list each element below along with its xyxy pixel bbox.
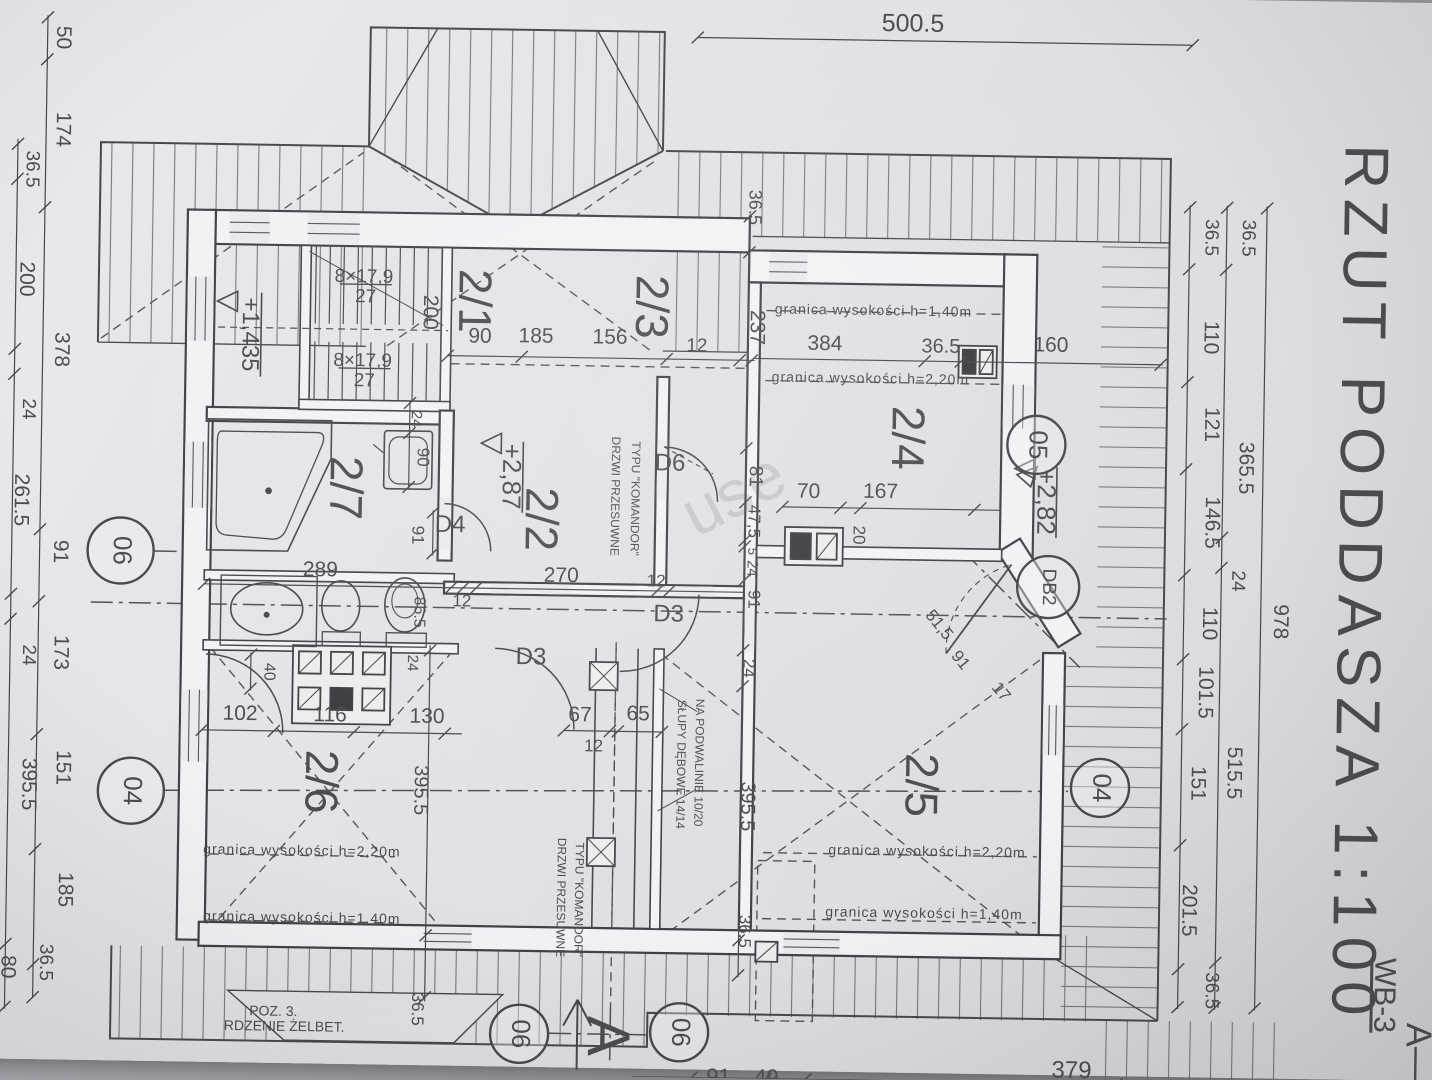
dim-label: 36.5	[408, 993, 428, 1026]
stair-note: 27	[354, 370, 375, 391]
dim-label: 12	[647, 571, 666, 590]
dim-label: 80	[0, 955, 20, 979]
room-label: 2/7	[320, 456, 373, 521]
dim-label: 237	[745, 310, 769, 345]
dim-label: 24	[408, 411, 425, 428]
room-label: 2/3	[626, 274, 679, 339]
dim-label: 91	[706, 1064, 731, 1080]
dim-label: 65	[626, 702, 650, 725]
door-note: DRZWI PRZESUWNE	[607, 436, 623, 556]
dim-label: 101.5	[1194, 666, 1218, 719]
height-limit: granica wysokości h=1,40m	[775, 300, 973, 319]
dim-chain-line	[698, 37, 1193, 45]
dim-chain-line	[433, 510, 434, 555]
dim-label: 365.5	[1234, 442, 1258, 495]
door-label: D6	[655, 449, 686, 476]
dim-label: 174	[51, 112, 75, 148]
dim-label: 36.5	[921, 335, 960, 358]
dim-label: 24	[18, 644, 39, 666]
dim-chain-line	[564, 730, 662, 732]
dim-label: 121	[1200, 407, 1224, 442]
dim-label: 91	[744, 590, 763, 609]
dim-label: 185	[518, 324, 553, 348]
door-note: TYPU "KOMANDOR"	[571, 842, 587, 957]
dim-label: 173	[49, 635, 73, 670]
door-label: D3	[515, 643, 546, 670]
dim-label: 12	[584, 736, 603, 755]
section-letter: A—	[1398, 1023, 1432, 1080]
dim-label: 395.5	[736, 781, 759, 831]
dim-label: 12	[452, 591, 471, 610]
dim-label: 500.5	[881, 9, 944, 38]
dim-label: 70	[797, 480, 821, 503]
height-limit: granica wysokości h=2,20m	[772, 368, 970, 387]
dim-chain-line	[202, 730, 462, 734]
dim-label: 90	[468, 324, 492, 347]
dim-label: 50	[52, 26, 75, 50]
dim-label: 201.5	[1177, 884, 1201, 937]
dim-label: 185	[53, 872, 77, 907]
level-mark: +2,87	[496, 444, 527, 510]
dim-chain-line	[250, 653, 251, 691]
stair-note: 8×17,9	[334, 266, 393, 288]
stair-tread	[398, 247, 400, 401]
dim-label: 67	[568, 703, 592, 726]
dim-label: 91	[49, 540, 72, 564]
dim-label: 395.5	[17, 758, 41, 811]
level-mark: +2,82	[1031, 469, 1062, 535]
corner-bathtub	[207, 419, 332, 552]
dim-label: 151	[51, 750, 75, 785]
core-note: RDZENIE ŻELBET.	[224, 1016, 345, 1035]
door-label: D3	[653, 600, 684, 627]
dim-label: 167	[863, 480, 898, 504]
dim-label: 200	[419, 295, 443, 330]
sheet-title: RZUT PODDASZA 1:100	[1318, 144, 1401, 1026]
dim-tick	[0, 1001, 11, 1013]
dim-label: 90	[413, 448, 432, 467]
dim-label: 40	[260, 663, 277, 681]
dim-chain-line	[1255, 206, 1268, 1010]
height-limit: granica wysokości h=2,20m	[828, 841, 1026, 860]
dim-label: 378	[50, 332, 74, 367]
dim-label: 86.5	[410, 596, 428, 628]
dim-label: 110	[1199, 321, 1223, 355]
dim-label: 151	[1186, 766, 1210, 801]
section-arrow-letter: A	[575, 1016, 643, 1057]
section-mark-label: 05	[1023, 430, 1053, 459]
level-mark: +1,435	[236, 297, 264, 371]
door-label: D4	[435, 511, 466, 538]
dim-label: 146.5	[1200, 496, 1224, 549]
dim-label: 384	[807, 332, 843, 356]
dim-label: 130	[409, 705, 444, 729]
dim-label: 102	[222, 702, 257, 726]
dim-label: 289	[303, 558, 338, 582]
dim-label: 36.5	[1201, 972, 1223, 1009]
dim-label: 20	[849, 525, 868, 544]
stair-note: 27	[355, 286, 376, 307]
photo-of-floor-plan: RZUT PODDASZA 1:100WB-3A—A500.5501743789…	[0, 0, 1432, 1080]
dim-label: 116	[313, 703, 347, 727]
dim-label: 36.5	[21, 150, 43, 187]
post-note: SŁUPY DĘBOWE 14/14	[673, 700, 689, 830]
dim-label: 24	[739, 659, 758, 678]
dim-label: 36.5	[1200, 219, 1222, 256]
section-mark-label: 06	[506, 1019, 536, 1048]
height-limit: granica wysokości h=1,40m	[825, 903, 1023, 922]
dim-label: 36.5	[1237, 220, 1259, 257]
dim-label: 978	[1269, 604, 1293, 639]
dim-chain-line	[782, 507, 1000, 510]
height-limit: granica wysokości h=1,40m	[203, 908, 401, 927]
dim-label: 12	[686, 335, 707, 356]
dim-label: 36.5	[745, 190, 766, 225]
dim-label: 91	[947, 647, 974, 674]
flue-corridor	[784, 527, 843, 566]
door-note: TYPU "KOMANDOR"	[627, 441, 643, 556]
dim-label: 24	[18, 398, 39, 420]
dim-chain-line	[448, 356, 755, 361]
dim-label: 270	[544, 564, 579, 588]
dim-label: 91	[408, 526, 427, 545]
dim-label: 24	[743, 560, 760, 577]
dim-label: 51,5	[922, 606, 958, 644]
dim-label: 261.5	[9, 473, 33, 526]
room-label: 2/6	[295, 749, 348, 814]
section-mark-label: 06	[666, 1018, 696, 1047]
post-note: NA PODWALINIE 10/20	[691, 699, 707, 827]
fixtures	[205, 419, 433, 648]
dim-label: 515.5	[1222, 747, 1246, 800]
section-mark-label: DB2	[1038, 568, 1060, 605]
section-mark-label: 04	[118, 776, 148, 805]
dim-label: 49	[754, 1064, 779, 1080]
stair-note: 8×17,9	[333, 350, 392, 372]
dim-label: 17	[988, 678, 1015, 705]
dim-label: 5	[745, 548, 760, 555]
dim-label: 36.5	[35, 944, 57, 981]
section-mark-label: 04	[1087, 773, 1117, 802]
dim-label: 36.5	[735, 915, 755, 948]
dim-label: 200	[15, 261, 39, 296]
bidet	[321, 581, 361, 647]
dim-label: 24	[1227, 570, 1248, 592]
room-label: 2/4	[882, 405, 935, 470]
section-mark-label: 06	[108, 536, 138, 565]
drawing-sheet: RZUT PODDASZA 1:100WB-3A—A500.5501743789…	[0, 0, 1432, 1080]
floor-plan-svg: RZUT PODDASZA 1:100WB-3A—A500.5501743789…	[0, 0, 1432, 1080]
dim-label: 24	[404, 655, 421, 672]
dim-label: 160	[1033, 333, 1068, 357]
dim-label: 395.5	[409, 765, 432, 815]
dim-label: 379	[1051, 1057, 1091, 1080]
room-label: 2/5	[895, 753, 948, 818]
dim-label: 156	[592, 325, 627, 349]
dim-tick	[685, 1071, 697, 1080]
stair-tread	[412, 247, 414, 401]
door-note: DRZWI PRZESUWNE	[553, 838, 569, 958]
dim-label: 110	[1198, 607, 1222, 641]
height-limit: granica wysokości h=2,20m	[203, 841, 401, 860]
drawing-code: WB-3	[1367, 958, 1401, 1034]
